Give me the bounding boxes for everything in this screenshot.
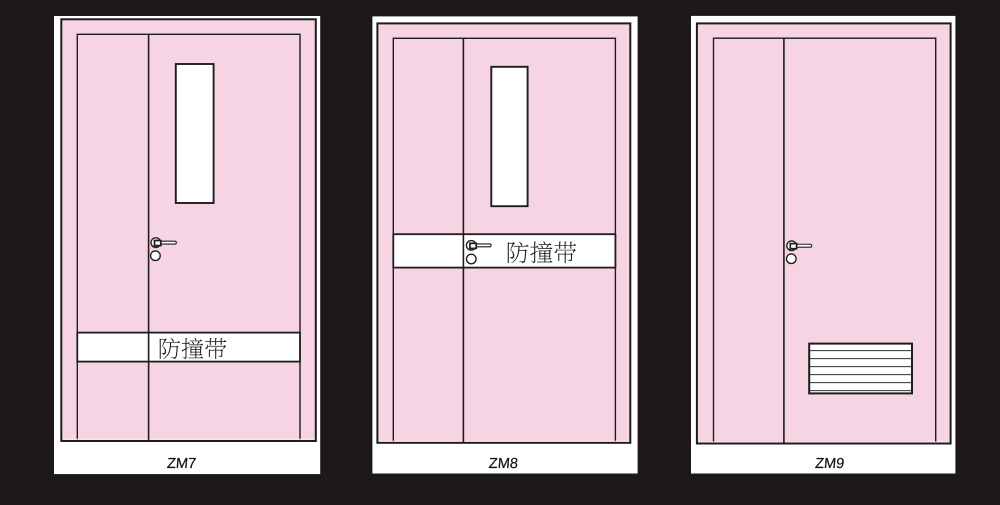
svg-text:ZM8: ZM8: [488, 456, 519, 472]
svg-text:ZM9: ZM9: [814, 456, 845, 472]
svg-text:ZM7: ZM7: [166, 456, 197, 472]
